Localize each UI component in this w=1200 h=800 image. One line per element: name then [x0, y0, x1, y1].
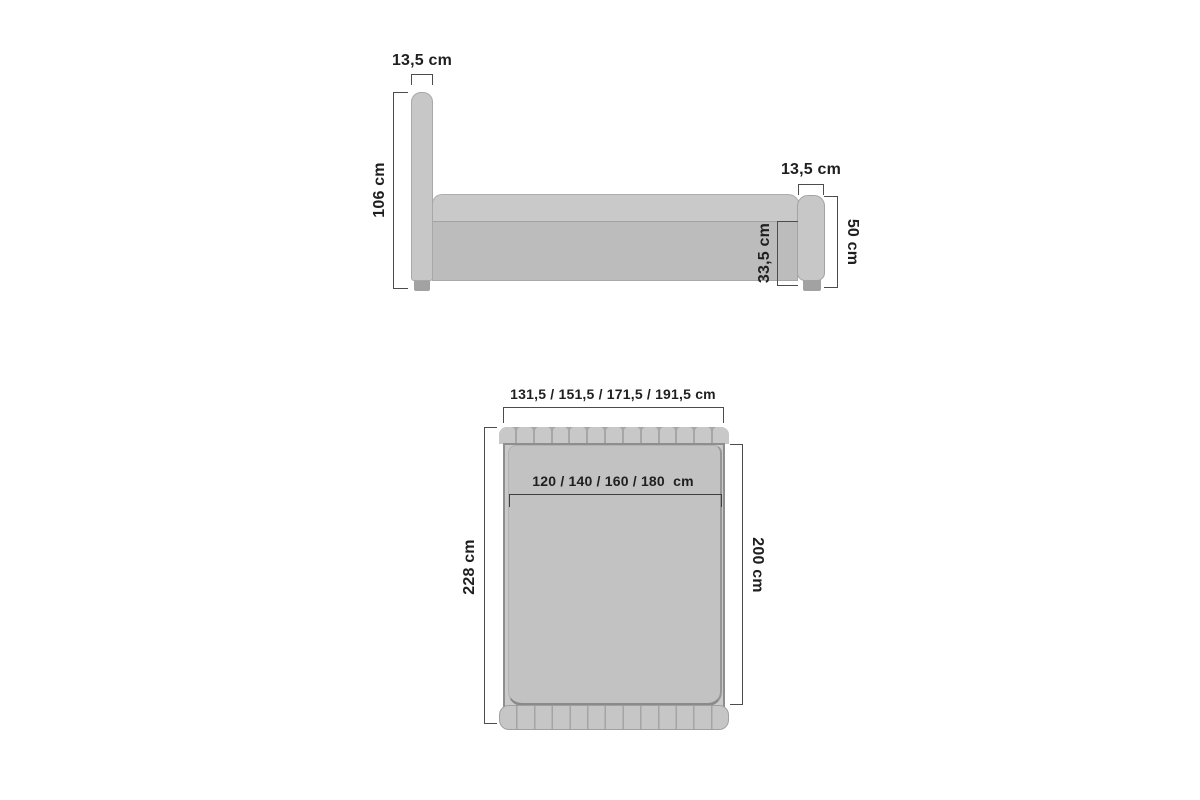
bed-dimensions-diagram: 13,5 cm 106 cm 13,5 cm 50 cm 33,5 cm	[0, 0, 1200, 800]
footboard-leg	[803, 280, 821, 291]
footboard-top	[499, 705, 729, 730]
dim-mattress-width-line	[509, 494, 722, 507]
dim-total-width-bracket	[503, 407, 724, 423]
headboard-slat	[606, 427, 622, 444]
dim-headboard-width-bracket	[411, 74, 433, 85]
dim-footboard-width-label: 13,5 cm	[781, 161, 841, 179]
dim-headboard-height-label: 106 cm	[371, 162, 389, 217]
dim-headboard-width-label: 13,5 cm	[392, 52, 452, 70]
dim-mattress-width-label: 120 / 140 / 160 / 180 cm	[532, 473, 693, 489]
headboard-slat	[713, 427, 729, 444]
footboard-side	[797, 195, 825, 281]
dim-total-length-label: 228 cm	[461, 539, 479, 594]
dim-side-rail-height-label: 33,5 cm	[756, 223, 774, 283]
bed-frame-side	[432, 220, 798, 281]
dim-headboard-height-bracket	[393, 92, 408, 289]
dim-total-width-label: 131,5 / 151,5 / 171,5 / 191,5 cm	[510, 386, 716, 402]
dim-side-rail-height-bracket	[777, 221, 798, 286]
headboard-leg	[414, 280, 430, 291]
headboard-slat	[553, 427, 569, 444]
headboard-slat	[677, 427, 693, 444]
dim-footboard-height-bracket	[824, 196, 838, 288]
headboard-slat	[642, 427, 658, 444]
headboard-slat	[624, 427, 640, 444]
dim-mattress-length-label: 200 cm	[748, 537, 766, 592]
dim-footboard-width-bracket	[798, 184, 824, 195]
headboard-top	[499, 427, 729, 444]
headboard-slat	[660, 427, 676, 444]
headboard-slat	[695, 427, 711, 444]
mattress-side	[432, 194, 800, 221]
dim-total-length-bracket	[484, 427, 497, 724]
headboard-slat	[517, 427, 533, 444]
headboard-slat	[535, 427, 551, 444]
headboard-slat	[499, 427, 515, 444]
headboard-side	[411, 92, 433, 281]
headboard-slat	[570, 427, 586, 444]
dim-mattress-length-bracket	[730, 444, 743, 705]
dim-footboard-height-label: 50 cm	[843, 219, 861, 265]
headboard-slat	[588, 427, 604, 444]
